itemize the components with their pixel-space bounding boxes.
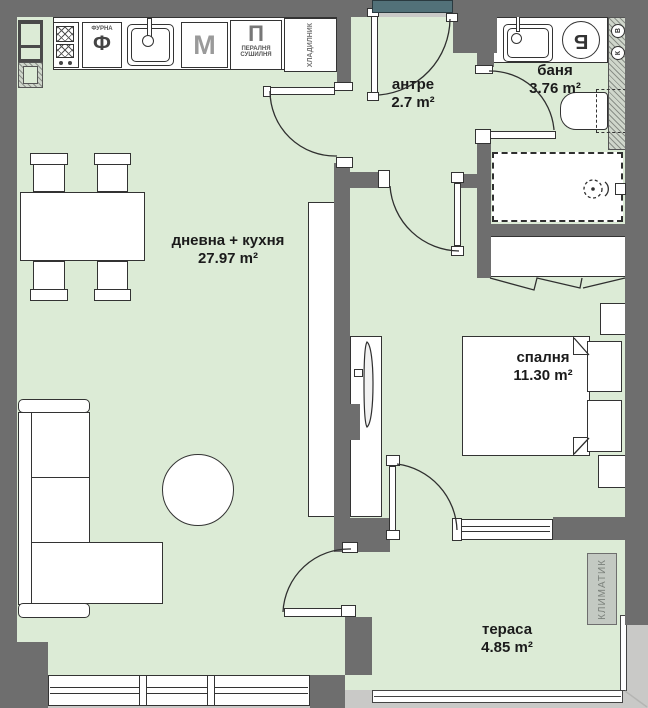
room-name: баня — [505, 62, 605, 80]
wall-segment — [310, 675, 345, 708]
room-label-terrace: тераса 4.85 m² — [457, 621, 557, 657]
riser-k: К — [611, 46, 625, 60]
sofa-cushion — [31, 477, 90, 543]
room-name: дневна + кухня — [148, 232, 308, 250]
wall-segment — [553, 517, 627, 540]
wall-segment — [477, 143, 491, 278]
door-jamb — [475, 65, 493, 74]
terrace-railing-line — [374, 696, 621, 697]
wall-segment — [477, 224, 627, 236]
boiler-letter: Б — [574, 29, 588, 52]
sofa-armrest — [18, 399, 90, 413]
wall-segment — [337, 17, 351, 88]
entry-door-mat — [372, 0, 453, 13]
chair-seat — [33, 164, 65, 192]
room-area: 27.97 m² — [148, 250, 308, 268]
hob-knob — [68, 61, 72, 65]
hob-burner — [56, 44, 74, 58]
wall-central — [334, 163, 350, 519]
bath-door-leaf — [489, 131, 556, 139]
fridge: ХЛАДИЛНИК — [284, 18, 337, 72]
door-jamb — [451, 172, 464, 183]
riser-v: В — [611, 24, 625, 38]
nightstand — [598, 455, 627, 488]
corner-column-panel — [21, 24, 40, 45]
bedroom-window-glazing — [458, 526, 550, 532]
room-name: спалня — [493, 349, 593, 367]
room-name: антре — [363, 76, 463, 94]
door-jamb — [386, 530, 400, 540]
chair-seat — [97, 164, 128, 192]
wall-segment — [17, 642, 48, 708]
tv-mount — [354, 369, 363, 377]
fridge-label: ХЛАДИЛНИК — [307, 23, 314, 67]
living-window-mullion — [207, 675, 215, 706]
coffee-table — [162, 454, 234, 526]
sofa-chaise — [31, 542, 163, 604]
sofa-armrest — [18, 603, 90, 618]
pillow — [587, 400, 622, 452]
living-window-mullion — [139, 675, 147, 706]
room-label-living: дневна + кухня 27.97 m² — [148, 232, 308, 268]
shower-mixer — [615, 183, 626, 195]
door-jamb — [475, 129, 491, 144]
riser-k-letter: К — [615, 51, 622, 55]
hvac-unit: КЛИМАТИК — [587, 553, 617, 625]
laundry-sub2: СУШИЛНЯ — [231, 52, 281, 58]
oven-letter: Ф — [83, 32, 121, 56]
door-jamb — [378, 170, 390, 188]
shower-area — [492, 152, 623, 222]
living-window-glazing — [50, 687, 308, 694]
dishwasher-letter: М — [193, 30, 216, 61]
hob-knob — [59, 61, 63, 65]
riser-v-letter: В — [615, 28, 622, 33]
bath-faucet-stem — [516, 16, 520, 32]
sofa-cushion — [31, 412, 90, 478]
corner-insulation-core — [23, 66, 38, 84]
door-jamb — [341, 605, 356, 617]
kitchen-faucet — [142, 35, 154, 47]
sofa-back — [18, 412, 32, 605]
boiler: Б — [562, 21, 600, 59]
door-jamb — [451, 246, 464, 256]
wall-left — [0, 0, 17, 708]
door-jamb — [336, 157, 353, 168]
duct-block — [338, 404, 360, 440]
chair-back — [94, 289, 131, 301]
dining-table — [20, 192, 145, 261]
door-jamb — [386, 455, 400, 466]
wall-top — [0, 0, 372, 17]
floor-plan: ФУРНА Ф М П ПЕРАЛНЯ СУШИЛНЯ ХЛАДИЛНИК Б … — [0, 0, 648, 708]
bedroom-door-leaf — [454, 183, 461, 246]
chair-seat — [33, 261, 65, 290]
chair-seat — [97, 261, 128, 290]
living-door-leaf — [268, 87, 335, 95]
door-jamb — [263, 86, 271, 97]
wardrobe — [490, 236, 626, 277]
laundry-letter: П — [231, 22, 281, 46]
room-area: 11.30 m² — [493, 367, 593, 385]
room-area: 3.76 m² — [505, 80, 605, 98]
dishwasher: М — [181, 22, 228, 68]
bath-faucet — [511, 33, 522, 44]
room-area: 4.85 m² — [457, 639, 557, 657]
room-label-bath: баня 3.76 m² — [505, 62, 605, 98]
washer-dryer: П ПЕРАЛНЯ СУШИЛНЯ — [230, 20, 282, 70]
wall-segment — [477, 17, 494, 67]
tall-cabinet — [308, 202, 336, 517]
wall-segment — [345, 617, 372, 675]
room-label-entry: антре 2.7 m² — [363, 76, 463, 112]
wall-right — [625, 17, 648, 625]
door-jamb — [342, 542, 358, 553]
corner-column-panel — [21, 48, 40, 59]
nightstand — [600, 303, 628, 335]
terrace-railing-side — [620, 615, 627, 691]
bedroom-terrace-door-leaf — [389, 466, 396, 532]
door-jamb — [334, 82, 353, 91]
oven: ФУРНА Ф — [82, 22, 122, 68]
bedroom-window-cap — [452, 518, 462, 541]
hvac-label: КЛИМАТИК — [597, 559, 608, 620]
room-label-bedroom: спалня 11.30 m² — [493, 349, 593, 385]
room-name: тераса — [457, 621, 557, 639]
hob-burner — [56, 26, 74, 42]
wall-top-right — [497, 0, 648, 17]
chair-back — [30, 289, 68, 301]
perspective-line — [625, 691, 647, 707]
door-jamb — [446, 13, 458, 22]
room-area: 2.7 m² — [363, 94, 463, 112]
